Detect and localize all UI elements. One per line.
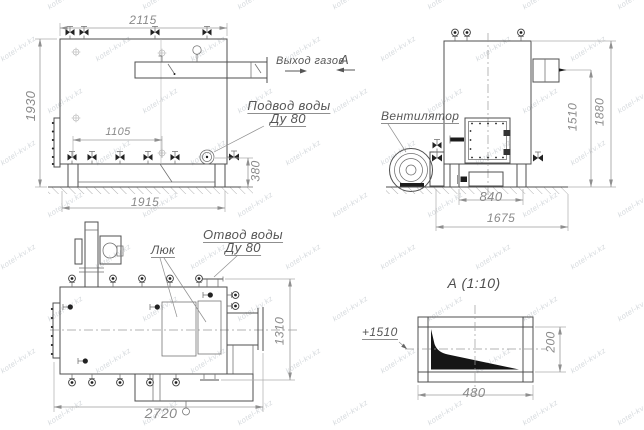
valves-plan-top bbox=[69, 275, 203, 287]
dim-base-length: 1915 bbox=[131, 196, 159, 209]
dimension-lines-plan bbox=[54, 279, 295, 412]
water-inlet-label-line2: Ду 80 bbox=[270, 112, 306, 127]
section-arrow bbox=[336, 68, 355, 73]
section-mark-label: А bbox=[340, 53, 349, 67]
dim-height: 1930 bbox=[24, 91, 38, 122]
valves-plan-bottom bbox=[69, 374, 180, 386]
pipe-fittings-plan bbox=[63, 292, 239, 364]
dim-detail-width: 480 bbox=[463, 386, 486, 400]
dim-plan-width: 1310 bbox=[274, 317, 287, 345]
dimension-lines-front bbox=[436, 41, 616, 231]
gas-outlet-label: Выход газов bbox=[276, 56, 345, 68]
elevation-mark-arrow bbox=[399, 342, 407, 349]
water-outlet-label-line2: Ду 80 bbox=[225, 241, 261, 256]
side-valves-front bbox=[432, 152, 543, 162]
dim-top-width: 2115 bbox=[129, 14, 156, 27]
boiler-body-side bbox=[60, 39, 227, 164]
ground-hatch-front bbox=[386, 187, 568, 194]
dim-plan-total-length: 2720 bbox=[145, 406, 178, 421]
dim-total-width: 1675 bbox=[487, 212, 515, 225]
drawing-canvas: kotel-kv.kzkotel-kv.kzkotel-kv.kzkotel-k… bbox=[0, 0, 644, 430]
dim-detail-height: 200 bbox=[545, 331, 558, 352]
water-outlet-flange bbox=[202, 255, 238, 287]
ground-hatch-side bbox=[48, 187, 253, 194]
door-flange-plan bbox=[51, 303, 60, 358]
side-box bbox=[533, 59, 591, 82]
side-view bbox=[35, 23, 355, 212]
outlet-duct-plan bbox=[227, 307, 263, 374]
dim-total-height: 1880 bbox=[594, 98, 607, 126]
dim-inlet-height: 380 bbox=[250, 160, 263, 181]
fan-label: Вентилятор bbox=[381, 110, 459, 124]
hatch-label: Люк bbox=[151, 244, 175, 258]
dim-valve-row: 1105 bbox=[105, 127, 130, 139]
dim-stub-height: 1510 bbox=[567, 103, 580, 131]
door-front bbox=[450, 118, 511, 163]
elevation-mark: +1510 bbox=[362, 326, 398, 340]
valves-bottom-row bbox=[68, 151, 240, 164]
support-legs-side bbox=[68, 164, 225, 187]
gas-outlet-duct bbox=[135, 46, 267, 83]
dim-leg-spacing: 840 bbox=[480, 190, 503, 204]
hatch-leader-lines bbox=[160, 258, 206, 322]
detail-a-title: А (1:10) bbox=[448, 276, 501, 291]
door-flange-side bbox=[52, 118, 60, 167]
gas-flow-arrow bbox=[285, 69, 307, 74]
